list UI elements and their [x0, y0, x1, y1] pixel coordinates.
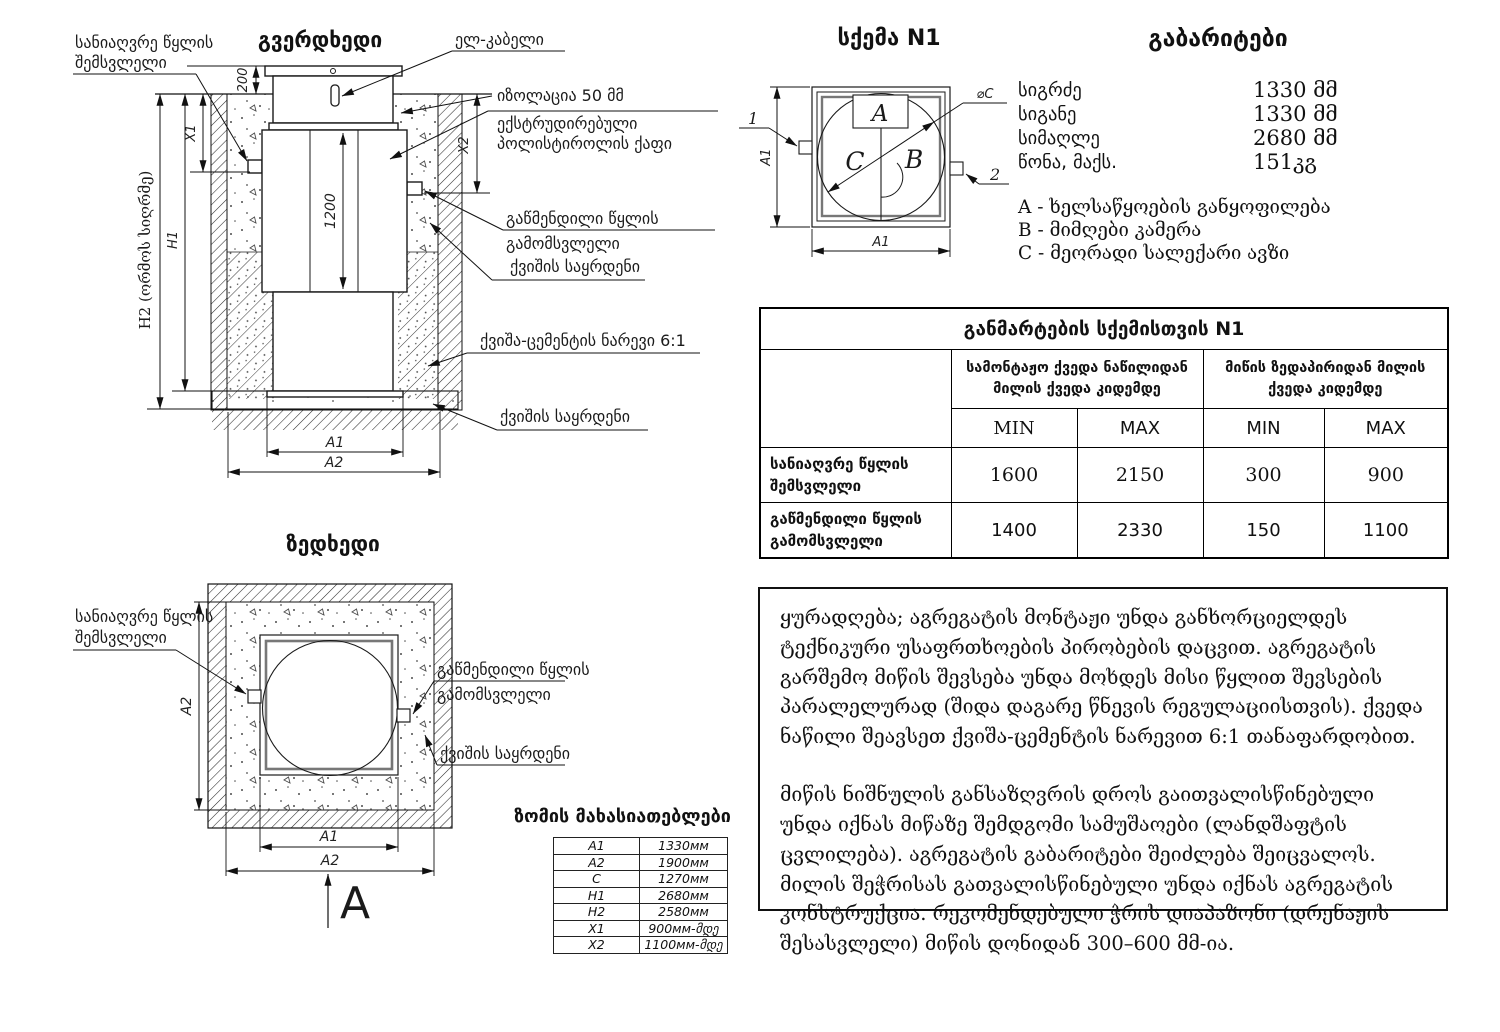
top-inlet-stub: [248, 690, 261, 703]
tank-bottom-plate: [267, 391, 403, 397]
dim-a1-side: A1: [325, 435, 344, 451]
size-row: A1 1330мм: [554, 838, 728, 855]
topview-outlet-label-line1: გაწმენდილი წყლის: [437, 660, 590, 679]
tank-lower-body: [273, 292, 393, 391]
size-value: 2580мм: [640, 904, 728, 921]
scheme-outlet-stub: [950, 162, 963, 175]
dimension-label: სიგრძე: [1018, 80, 1082, 101]
dimension-row-length: სიგრძე 1330 მმ: [1018, 78, 1348, 102]
topview-sand-label: ქვიშის საყრდენი: [440, 744, 570, 763]
dimension-value: 2680 მმ: [1253, 126, 1338, 150]
cell-value: 300: [1203, 448, 1324, 503]
notes-paragraph-1: ყურადღება; აგრეგატის მონტაჟი უნდა განხორ…: [780, 603, 1424, 752]
size-value: 1270мм: [640, 871, 728, 888]
table-group-header-1: სამონტაჟო ქვედა ნაწილიდან მილის ქვედა კი…: [951, 350, 1203, 409]
size-value: 1100мм-მდე: [640, 937, 728, 954]
dim-a1-topview: A1: [319, 829, 338, 845]
insulation-label: იზოლაცია 50 მმ: [497, 86, 624, 105]
dim-h2: H2 (ორმოს სიღრმე): [136, 171, 154, 330]
dimension-row-weight: წონა, მაქს. 151კგ: [1018, 150, 1348, 174]
table-group-header-row: სამონტაჟო ქვედა ნაწილიდან მილის ქვედა კი…: [760, 350, 1448, 409]
size-param: A2: [554, 854, 640, 871]
cell-value: 150: [1203, 503, 1324, 559]
technical-drawing-sheet: { "side_view": { "title": "გვერდხედი", "…: [0, 0, 1500, 1032]
size-row: C 1270мм: [554, 871, 728, 888]
size-param: X1: [554, 920, 640, 937]
cell-value: 1600: [951, 448, 1077, 503]
topview-outlet-label-line2: გამომსვლელი: [437, 685, 551, 704]
scheme-inlet-stub: [799, 141, 812, 154]
cell-value: 2330: [1077, 503, 1203, 559]
size-param: X2: [554, 937, 640, 954]
dimension-value: 1330 მმ: [1253, 78, 1338, 102]
table-row: სანიაღვრე წყლის შემსვლელი 1600 2150 300 …: [760, 448, 1448, 503]
size-row: X1 900мм-მდე: [554, 920, 728, 937]
size-characteristics-table: A1 1330мм A2 1900мм C 1270мм H1 2680мм H…: [553, 837, 728, 954]
max-header-2: MAX: [1324, 409, 1448, 448]
explanation-table: განმარტების სქემისთვის N1 სამონტაჟო ქვედ…: [759, 307, 1449, 559]
cell-value: 900: [1324, 448, 1448, 503]
size-param: H2: [554, 904, 640, 921]
scheme-dim-a1-bottom: A1: [871, 235, 889, 250]
scheme-dim-a1-left: A1: [759, 148, 774, 166]
table-corner-cell: [760, 350, 951, 448]
scheme-callout-2: 2: [989, 165, 1000, 184]
dimension-label: წონა, მაქს.: [1018, 152, 1117, 173]
scheme-label-c: C: [845, 147, 864, 176]
size-row: A2 1900мм: [554, 854, 728, 871]
legend-item-c: C - მეორადი სალექარი ავზი: [1018, 242, 1378, 265]
size-param: A1: [554, 838, 640, 855]
dimension-value: 1330 მმ: [1253, 102, 1338, 126]
section-marker-a: A: [340, 878, 370, 929]
outlet-label-line1: გაწმენდილი წყლის: [506, 209, 659, 228]
dim-a2-topview-bottom: A2: [320, 853, 340, 869]
tank-outlet-stub: [407, 182, 422, 195]
compartment-legend: A - ხელსაწყოების განყოფილება B - მიმღები…: [1018, 196, 1378, 265]
size-value: 1330мм: [640, 838, 728, 855]
cell-value: 2150: [1077, 448, 1203, 503]
size-value: 1900мм: [640, 854, 728, 871]
inlet-label-line1: სანიაღვრე წყლის: [75, 33, 213, 52]
dim-x2: X2: [457, 136, 472, 154]
notes-paragraph-2: მიწის ნიშნულის განსაზღვრის დროს გაითვალი…: [780, 780, 1424, 959]
min-header-2: MIN: [1203, 409, 1324, 448]
dimension-label: სიგანე: [1018, 104, 1076, 125]
dimension-label: სიმაღლე: [1018, 128, 1100, 149]
size-param: H1: [554, 887, 640, 904]
legend-item-b: B - მიმღები კამერა: [1018, 219, 1378, 242]
dim-a2-topview-left: A2: [179, 697, 195, 717]
size-row: H2 2580мм: [554, 904, 728, 921]
size-row: X2 1100мм-მდე: [554, 937, 728, 954]
size-row: H1 2680мм: [554, 887, 728, 904]
cable-label: ელ-კაბელი: [455, 30, 544, 49]
lid-vent: [331, 69, 336, 74]
side-view-drawing: 200 X1 H1 H2 (ორმოს სიღრმე) X2 1200 A1 A…: [60, 25, 725, 503]
dim-1200: 1200: [323, 193, 339, 229]
size-param: C: [554, 871, 640, 888]
foam-label-line2: პოლისტიროლის ქაფი: [497, 134, 672, 153]
outlet-label-line2: გამომსვლელი: [506, 234, 620, 253]
inlet-label-line2: შემსვლელი: [75, 53, 167, 72]
sand-label-2: ქვიშის საყრდენი: [500, 407, 630, 426]
legend-item-a: A - ხელსაწყოების განყოფილება: [1018, 196, 1378, 219]
scheme-title: სქემა N1: [828, 26, 950, 51]
tank-inlet-stub: [248, 160, 262, 173]
dimensions-panel: სიგრძე 1330 მმ სიგანე 1330 მმ სიმაღლე 26…: [1018, 78, 1348, 174]
cell-value: 1100: [1324, 503, 1448, 559]
size-value: 900мм-მდე: [640, 920, 728, 937]
cable-slot: [331, 85, 339, 106]
top-outlet-stub: [397, 709, 410, 722]
max-header-1: MAX: [1077, 409, 1203, 448]
scheme-label-a: A: [870, 101, 889, 127]
scheme-diameter-label: ⌀C: [977, 87, 995, 102]
table-title: განმარტების სქემისთვის N1: [760, 308, 1448, 350]
dimension-row-height: სიმაღლე 2680 მმ: [1018, 126, 1348, 150]
dim-h1: H1: [166, 231, 181, 249]
tank-flange: [269, 123, 398, 130]
mix-label: ქვიშა-ცემენტის ნარევი 6:1: [480, 331, 686, 350]
dimension-row-width: სიგანე 1330 მმ: [1018, 102, 1348, 126]
table-group-header-2: მიწის ზედაპირიდან მილის ქვედა კიდემდე: [1203, 350, 1448, 409]
table-row: გაწმენდილი წყლის გამომსვლელი 1400 2330 1…: [760, 503, 1448, 559]
dim-a2-side: A2: [324, 455, 344, 471]
dimensions-panel-title: გაბარიტები: [1118, 26, 1318, 52]
size-value: 2680мм: [640, 887, 728, 904]
pit-bottom-hatch: [212, 410, 458, 430]
row-label-inlet: სანიაღვრე წყლის შემსვლელი: [760, 448, 951, 503]
scheme-n1-drawing: A C B ⌀C 1 2 A1 A1: [735, 50, 1025, 265]
scheme-callout-1: 1: [748, 109, 758, 128]
dim-200: 200: [236, 68, 251, 93]
pit-wall-left: [211, 94, 227, 410]
scheme-label-b: B: [904, 145, 923, 174]
table-title-row: განმარტების სქემისთვის N1: [760, 308, 1448, 350]
dim-x1: X1: [184, 124, 199, 142]
topview-inlet-label-line1: სანიაღვრე წყლის: [75, 607, 213, 626]
topview-inlet-label-line2: შემსვლელი: [75, 628, 167, 647]
row-label-outlet: გაწმენდილი წყლის გამომსვლელი: [760, 503, 951, 559]
min-header-1: MIN: [951, 409, 1077, 448]
dimension-value: 151კგ: [1253, 150, 1317, 174]
cell-value: 1400: [951, 503, 1077, 559]
sand-label-1: ქვიშის საყრდენი: [510, 257, 640, 276]
foam-label-line1: ექსტრუდირებული: [497, 114, 637, 133]
installation-notes-box: ყურადღება; აგრეგატის მონტაჟი უნდა განხორ…: [758, 587, 1448, 911]
